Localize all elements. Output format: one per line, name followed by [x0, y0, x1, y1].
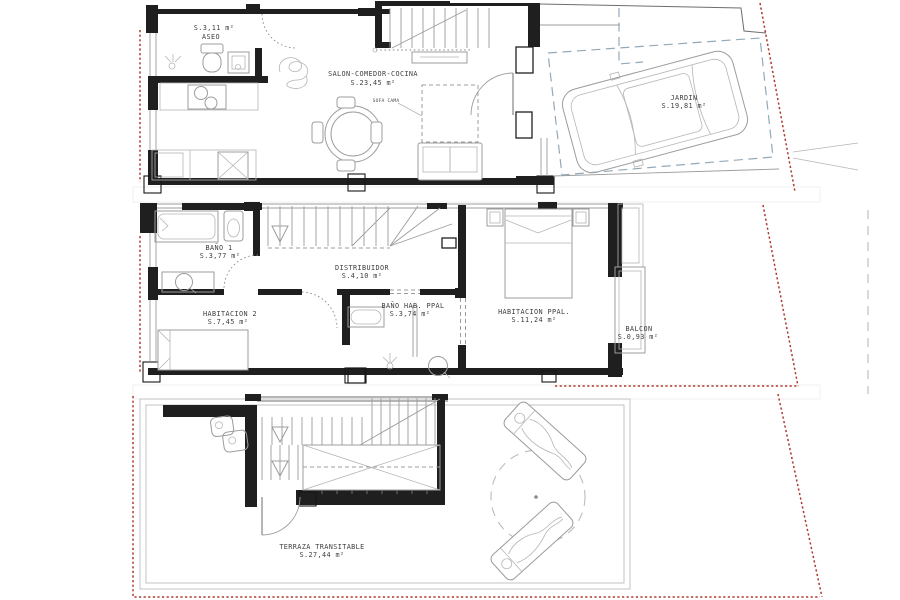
room-label-aseo: ASEO [202, 33, 220, 41]
room-area-balcon: S.0,93 m² [618, 333, 658, 341]
toilet-icon [201, 44, 223, 72]
radiator [442, 238, 456, 248]
room-label-habppal: HABITACION PPAL. [498, 308, 570, 316]
room-label-terraza: TERRAZA TRANSITABLE [279, 543, 364, 551]
staircase-floor3 [262, 398, 440, 480]
parcel-boundary [760, 3, 795, 192]
ceiling-lamp-icon [383, 353, 397, 369]
pillar [345, 368, 365, 383]
hob-burner-icon [205, 97, 217, 109]
dining-table-icon [312, 97, 382, 171]
pillar [348, 174, 365, 191]
door-swing-arc [471, 73, 513, 115]
leader-line [398, 103, 422, 116]
skylight [303, 445, 440, 490]
room-area-terraza: S.27,44 m² [300, 551, 345, 559]
room-area-banoppal: S.3,74 m² [390, 310, 430, 318]
staircase-floor2 [268, 206, 452, 248]
parcel-boundary [778, 394, 822, 597]
room-area-habitacion2: S.7,45 m² [208, 318, 248, 326]
floor-1-plan [140, 1, 858, 193]
hatch-strip-1 [133, 187, 820, 202]
sun-lounger-icon [489, 500, 576, 583]
chair-icon [312, 122, 323, 143]
chair-icon [337, 160, 355, 171]
sun-lounger-icon [502, 400, 589, 483]
bath1-door-arc [224, 255, 258, 289]
jardin-dashed-boundary [548, 38, 773, 175]
bedroom2-door-arc [302, 292, 337, 328]
stair-direction-arrow [272, 427, 288, 442]
parcel-boundary [133, 396, 820, 597]
pillar [144, 176, 161, 193]
chair-icon [337, 97, 355, 108]
sink-icon [228, 52, 249, 73]
room-area-habppal: S.11,24 m² [512, 316, 557, 324]
nightstand-icon [487, 209, 503, 226]
room-label-balcon: BALCON [626, 325, 653, 333]
sofa-icon [418, 143, 482, 180]
room-area-jardin: S.19,81 m² [662, 102, 707, 110]
parasol-pole [534, 495, 538, 499]
ac-units-icon [210, 414, 249, 454]
pillar [299, 492, 316, 506]
pillar [542, 371, 556, 382]
floor-3-plan [133, 394, 822, 597]
room-label-salon: SALON-COMEDOR-COCINA [328, 70, 418, 78]
parcel-boundary [763, 205, 798, 386]
chair-icon [371, 122, 382, 143]
car-icon [558, 43, 753, 181]
jardin-dashed-boundary [619, 8, 643, 64]
bathtub-icon [155, 211, 218, 242]
door-swing-arc [262, 497, 300, 535]
floor-2-plan [140, 202, 868, 394]
double-bed-icon [487, 209, 589, 298]
hatch-strip-2 [133, 385, 820, 399]
hob-burner-icon [195, 87, 208, 100]
jardin-wall [540, 4, 766, 33]
staircase-floor1 [373, 8, 489, 63]
room-area-distribuidor: S.4,10 m² [342, 272, 382, 280]
nightstand-icon [573, 209, 589, 226]
sketch-figure [279, 58, 307, 89]
room-area-aseo: S.3,11 m² [194, 24, 234, 32]
room-label-jardin: JARDIN [671, 94, 698, 102]
room-label-bano1: BAÑO 1 [206, 243, 233, 252]
aseo-door-arc [262, 14, 296, 48]
sofa-bed-outline [422, 85, 478, 142]
bed-icon [158, 330, 248, 370]
bath-counter-icon [348, 307, 384, 327]
ceiling-lamp-icon [165, 54, 181, 69]
room-area-salon: S.23,45 m² [351, 79, 396, 87]
room-label-distribuidor: DISTRIBUIDOR [335, 264, 389, 272]
room-label-habitacion2: HABITACION 2 [203, 310, 257, 318]
toilet-icon [224, 211, 243, 241]
room-area-bano1: S.3,77 m² [200, 252, 240, 260]
floor-plan-drawing: S.3,11 m² ASEO SALON-COMEDOR-COCINA S.23… [0, 0, 900, 600]
sofa-cama-label: SOFA CAMA [373, 98, 400, 104]
kitchen-counter [152, 83, 258, 180]
room-label-banoppal: BAÑO HAB. PPAL [382, 301, 445, 310]
